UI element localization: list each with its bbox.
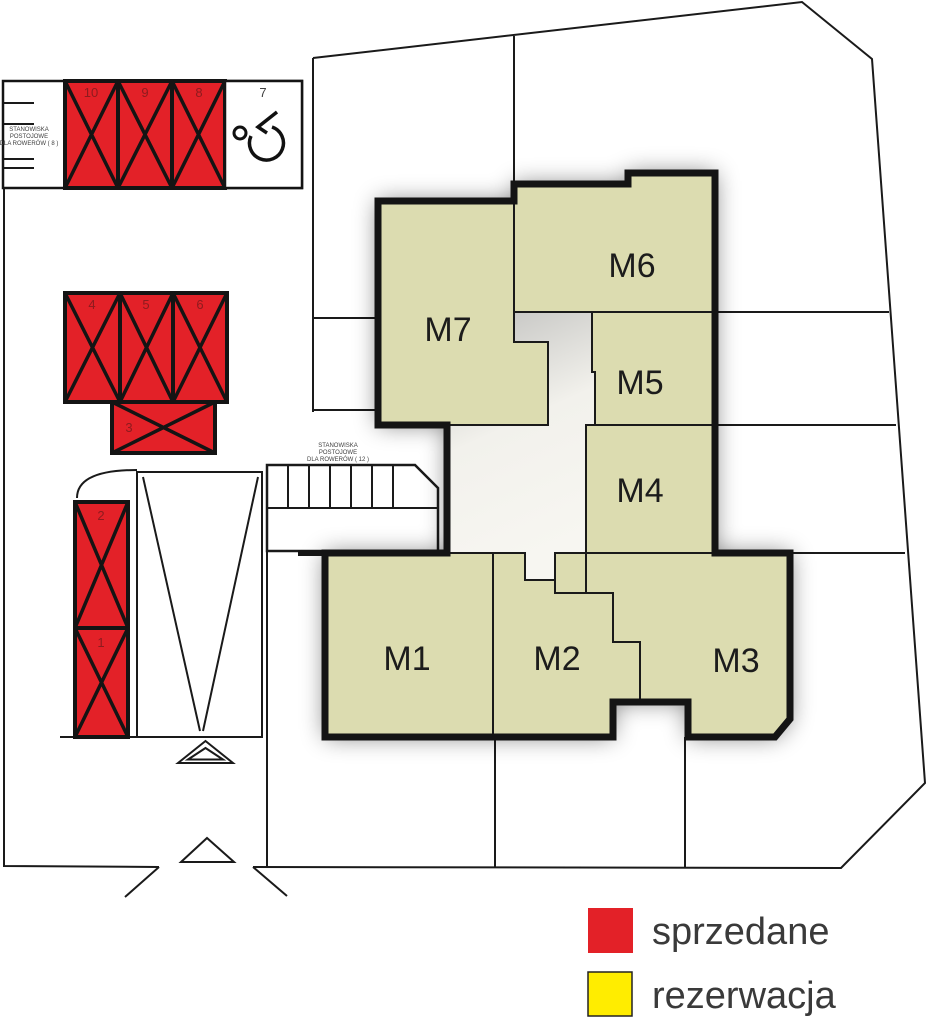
site-plan-svg: STANOWISKA POSTOJOWE DLA ROWERÓW ( 8 ) 1… — [0, 0, 949, 1024]
parking-row-top: STANOWISKA POSTOJOWE DLA ROWERÓW ( 8 ) 1… — [0, 81, 302, 188]
parking-space-5[interactable]: 5 — [120, 293, 173, 402]
legend-reserved-label: rezerwacja — [652, 975, 837, 1017]
apartment-label-m3[interactable]: M3 — [712, 642, 759, 680]
parking-row-middle: 4 5 6 3 — [65, 293, 227, 453]
entrance-gate-ticks — [125, 867, 287, 897]
parking-number: 7 — [259, 85, 266, 100]
parking-number: 5 — [142, 297, 149, 312]
parking-number: 9 — [141, 85, 148, 100]
legend-sold-swatch — [588, 908, 633, 953]
apartment-label-m5[interactable]: M5 — [616, 364, 663, 402]
apartment-label-m2[interactable]: M2 — [533, 640, 580, 678]
parking-number: 1 — [97, 635, 104, 650]
apartment-m6[interactable] — [514, 173, 715, 312]
parking-space-4[interactable]: 4 — [65, 293, 120, 402]
bike-note-line2: POSTOJOWE — [10, 134, 48, 140]
parking-space-1[interactable]: 1 — [75, 628, 128, 737]
bike-note-line2: POSTOJOWE — [319, 450, 357, 456]
garden-dividers-east — [715, 312, 905, 553]
parking-space-3[interactable]: 3 — [112, 402, 215, 453]
garage-ramp — [137, 472, 262, 763]
legend-reserved-swatch — [588, 972, 632, 1016]
bike-note-line1: STANOWISKA — [318, 443, 358, 449]
garden-dividers-south — [495, 737, 685, 867]
parking-number: 6 — [196, 297, 203, 312]
ramp-arrow-icon — [178, 741, 233, 763]
parking-space-8[interactable]: 8 — [172, 81, 225, 188]
parking-number: 4 — [88, 297, 95, 312]
bike-stands-large-group: STANOWISKA POSTOJOWE DLA ROWERÓW ( 12 ) — [267, 443, 438, 551]
parking-number: 10 — [84, 85, 98, 100]
apartment-label-m1[interactable]: M1 — [383, 640, 430, 678]
parking-number: 2 — [97, 508, 104, 523]
garden-dividers-west — [313, 318, 378, 410]
parking-space-9[interactable]: 9 — [118, 81, 172, 188]
parking-column-left: 2 1 — [60, 470, 262, 763]
driveway-curve — [77, 470, 137, 498]
bike-stands-note-large: STANOWISKA POSTOJOWE DLA ROWERÓW ( 12 ) — [307, 443, 369, 463]
site-plan: STANOWISKA POSTOJOWE DLA ROWERÓW ( 8 ) 1… — [0, 0, 949, 1024]
bike-note-line3: DLA ROWERÓW ( 8 ) — [0, 140, 58, 147]
parking-space-10[interactable]: 10 — [65, 81, 118, 188]
entrance-arrow-icon — [181, 838, 234, 862]
bike-note-line1: STANOWISKA — [9, 127, 49, 133]
ramp-outline — [137, 472, 262, 737]
apartment-label-m4[interactable]: M4 — [616, 472, 663, 510]
parking-space-7-disabled[interactable]: 7 — [225, 81, 302, 188]
building: M7 M6 M5 M4 M1 M2 M3 — [298, 173, 790, 737]
parking-space-2[interactable]: 2 — [75, 502, 128, 628]
parking-space-6[interactable]: 6 — [173, 293, 227, 402]
legend: sprzedane rezerwacja — [588, 908, 837, 1017]
parking-number: 3 — [125, 420, 132, 435]
legend-sold-label: sprzedane — [652, 911, 829, 953]
apartment-label-m6[interactable]: M6 — [608, 247, 655, 285]
parking-number: 8 — [195, 85, 202, 100]
bike-note-line3: DLA ROWERÓW ( 12 ) — [307, 456, 369, 463]
apartment-label-m7[interactable]: M7 — [424, 311, 471, 349]
